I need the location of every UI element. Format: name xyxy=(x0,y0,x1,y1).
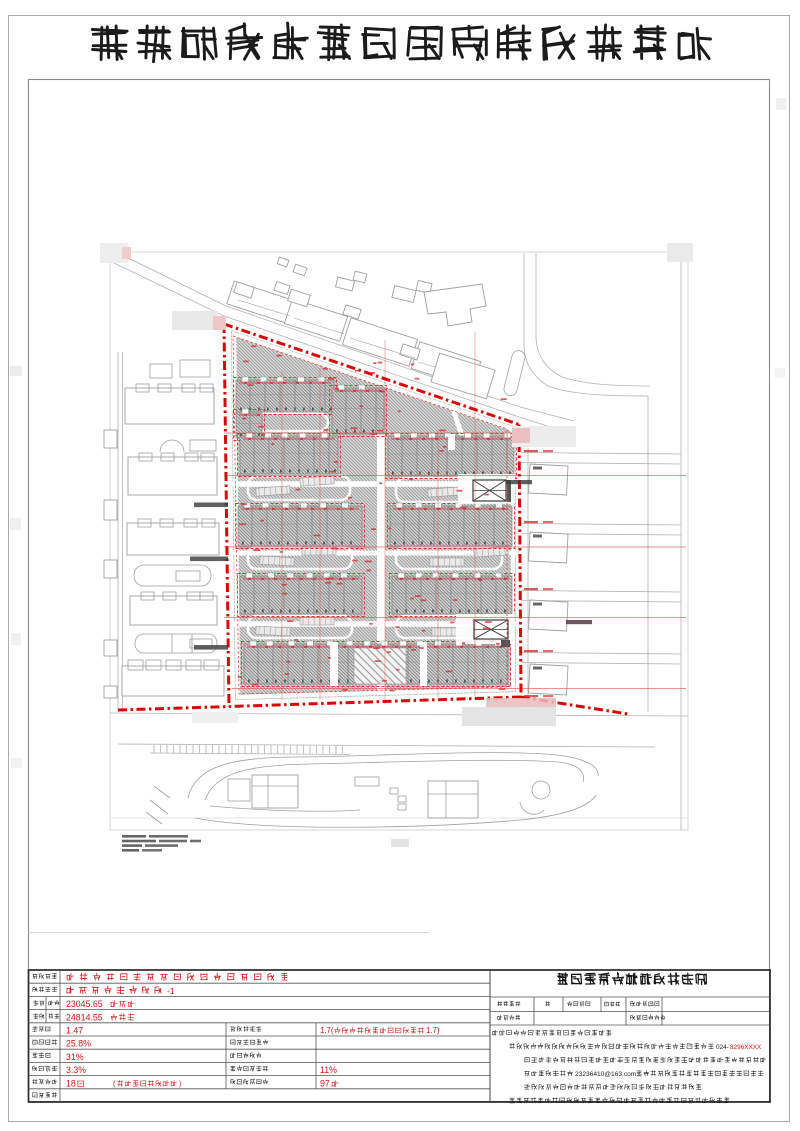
svg-text:18: 18 xyxy=(66,1078,76,1088)
svg-text:1.7): 1.7) xyxy=(426,1026,440,1035)
svg-text:1.47: 1.47 xyxy=(66,1026,83,1036)
svg-text:1.7(: 1.7( xyxy=(320,1026,334,1035)
svg-text:(: ( xyxy=(113,1079,116,1088)
svg-text:23236410@163.com.: 23236410@163.com. xyxy=(575,1071,638,1078)
svg-text:3.3%: 3.3% xyxy=(66,1065,86,1075)
svg-text:11%: 11% xyxy=(320,1065,337,1075)
svg-text:97: 97 xyxy=(320,1078,330,1088)
svg-text:024-: 024- xyxy=(716,1044,729,1051)
svg-text:): ) xyxy=(179,1079,181,1088)
svg-text:24814.55: 24814.55 xyxy=(66,1012,103,1022)
svg-text:25.8%: 25.8% xyxy=(66,1039,91,1049)
svg-text:23045.65: 23045.65 xyxy=(66,999,103,1009)
svg-text:8296XXXX: 8296XXXX xyxy=(730,1044,762,1051)
svg-text:-1: -1 xyxy=(167,986,175,996)
svg-text:31%: 31% xyxy=(66,1052,84,1062)
